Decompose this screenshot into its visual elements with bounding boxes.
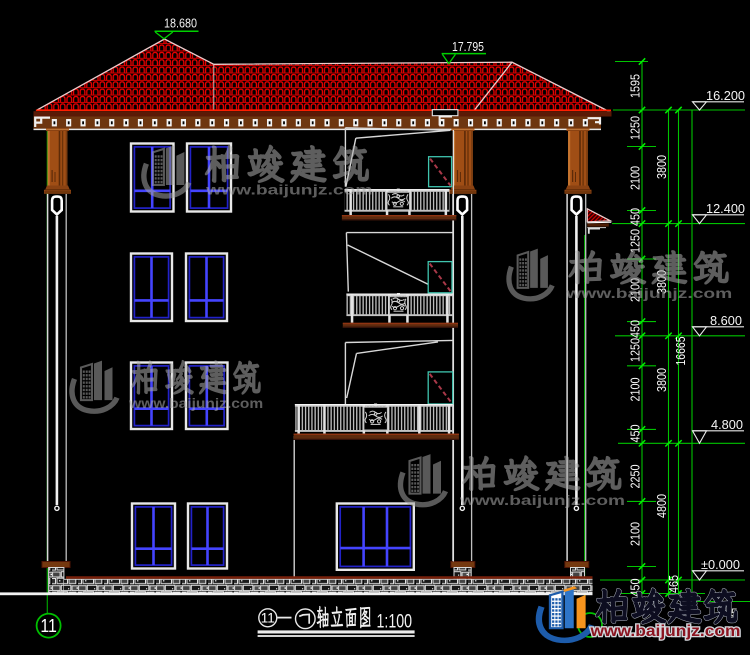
svg-text:±0.000: ±0.000 [701,557,740,572]
svg-text:1250: 1250 [629,116,643,140]
svg-text:450: 450 [629,208,643,226]
svg-text:1250: 1250 [629,338,643,362]
svg-text:3800: 3800 [655,155,669,179]
svg-text:16665: 16665 [674,336,688,365]
svg-text:4.800: 4.800 [711,417,743,432]
svg-text:465: 465 [667,575,681,593]
svg-text:2250: 2250 [629,464,643,488]
svg-text:3800: 3800 [655,368,669,392]
svg-text:www.baijunjz.com: www.baijunjz.com [589,623,740,640]
svg-text:www.baijunjz.com: www.baijunjz.com [459,492,625,508]
svg-text:11: 11 [40,616,57,636]
svg-text:450: 450 [629,424,643,442]
svg-text:www.baijunjz.com: www.baijunjz.com [128,396,263,411]
svg-text:2100: 2100 [629,166,643,190]
svg-text:18.680: 18.680 [164,16,197,31]
svg-text:www.baijunjz.com: www.baijunjz.com [565,286,732,301]
svg-text:17.795: 17.795 [452,39,484,54]
svg-text:12.400: 12.400 [706,201,745,216]
svg-text:www.baijunjz.com: www.baijunjz.com [205,183,373,198]
svg-text:16.200: 16.200 [706,88,745,103]
svg-text:8.600: 8.600 [710,313,742,328]
svg-text:2100: 2100 [629,377,643,401]
svg-text:1250: 1250 [629,229,643,253]
svg-text:450: 450 [629,320,643,338]
svg-text:4800: 4800 [655,494,669,518]
svg-text:1:100: 1:100 [377,612,413,633]
svg-text:11: 11 [261,611,275,626]
svg-text:2100: 2100 [629,522,643,546]
svg-text:1595: 1595 [629,74,643,98]
